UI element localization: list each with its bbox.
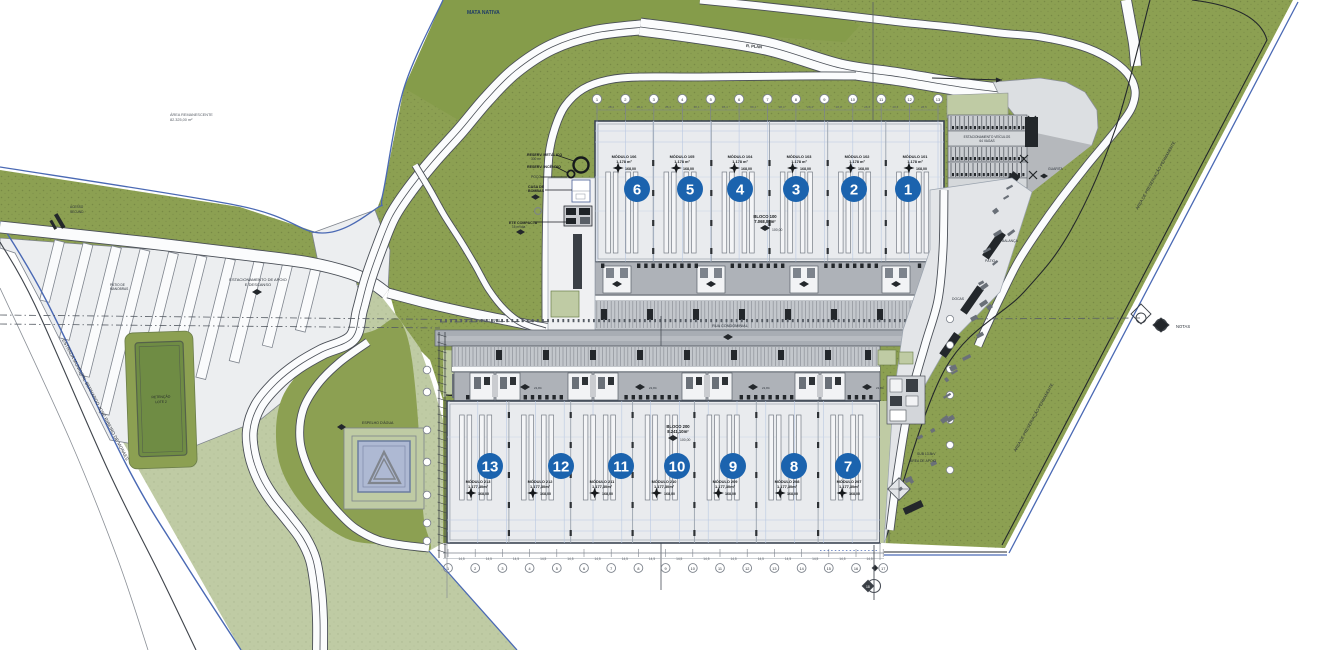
svg-text:1: 1 <box>904 182 912 199</box>
svg-text:10: 10 <box>669 459 686 476</box>
svg-text:82.325,00 m²: 82.325,00 m² <box>170 118 193 122</box>
svg-text:10: 10 <box>691 567 695 571</box>
svg-text:21,84: 21,84 <box>649 386 657 390</box>
svg-text:BOMBAS: BOMBAS <box>528 189 545 193</box>
svg-text:1.178 m²: 1.178 m² <box>674 159 690 164</box>
svg-text:3: 3 <box>792 182 800 199</box>
svg-text:LOTE 2: LOTE 2 <box>155 400 167 404</box>
svg-text:5: 5 <box>556 567 558 571</box>
svg-text:14,5: 14,5 <box>785 557 791 561</box>
svg-text:100,00: 100,00 <box>772 228 782 232</box>
svg-text:28,4: 28,4 <box>608 105 614 109</box>
svg-text:168,00: 168,00 <box>683 167 694 171</box>
svg-text:3: 3 <box>501 567 503 571</box>
svg-text:1.178 m²: 1.178 m² <box>907 159 923 164</box>
svg-text:ESPELHO D'ÁGUA: ESPELHO D'ÁGUA <box>362 421 394 425</box>
svg-text:21,84: 21,84 <box>534 386 542 390</box>
svg-text:28,4: 28,4 <box>836 105 842 109</box>
svg-text:28,4: 28,4 <box>694 105 700 109</box>
svg-text:28,4: 28,4 <box>807 105 813 109</box>
svg-text:8: 8 <box>790 459 798 476</box>
svg-text:BALANÇA: BALANÇA <box>1002 239 1019 243</box>
svg-text:RESERV. INCÊNDIO: RESERV. INCÊNDIO <box>527 164 561 169</box>
svg-text:SUB 13.8kV: SUB 13.8kV <box>917 452 936 456</box>
svg-text:168,00: 168,00 <box>625 167 636 171</box>
svg-text:6: 6 <box>583 567 585 571</box>
svg-text:28,4: 28,4 <box>665 105 671 109</box>
svg-text:14,5: 14,5 <box>594 557 600 561</box>
svg-text:14,5: 14,5 <box>676 557 682 561</box>
svg-text:ACESSO: ACESSO <box>70 205 84 209</box>
svg-text:14,5: 14,5 <box>649 557 655 561</box>
svg-text:4: 4 <box>736 182 745 199</box>
svg-text:14,5: 14,5 <box>567 557 573 561</box>
svg-text:7.068,00m²: 7.068,00m² <box>754 219 776 224</box>
svg-text:100,00: 100,00 <box>680 438 690 442</box>
svg-text:168,00: 168,00 <box>540 492 551 496</box>
svg-text:14,5: 14,5 <box>812 557 818 561</box>
svg-text:28,4: 28,4 <box>779 105 785 109</box>
svg-text:14,5: 14,5 <box>486 557 492 561</box>
svg-text:28,4: 28,4 <box>750 105 756 109</box>
svg-text:15: 15 <box>827 567 831 571</box>
svg-text:5: 5 <box>686 182 694 199</box>
svg-text:28,4: 28,4 <box>637 105 643 109</box>
svg-text:9: 9 <box>729 459 737 476</box>
svg-text:14,5: 14,5 <box>513 557 519 561</box>
svg-text:64 VAGAS: 64 VAGAS <box>979 139 994 143</box>
svg-text:2: 2 <box>474 567 476 571</box>
svg-text:MATA NATIVA: MATA NATIVA <box>467 10 500 16</box>
svg-text:MANOBRAS: MANOBRAS <box>110 287 128 291</box>
svg-text:14,5: 14,5 <box>622 557 628 561</box>
svg-text:13: 13 <box>772 567 776 571</box>
svg-text:13: 13 <box>482 459 499 476</box>
svg-text:6: 6 <box>633 182 641 199</box>
svg-text:9: 9 <box>665 567 667 571</box>
svg-text:28,4: 28,4 <box>892 105 898 109</box>
svg-text:DOCAS: DOCAS <box>952 297 965 301</box>
svg-text:13: 13 <box>936 97 941 102</box>
svg-text:RUA CONDOMINIAL: RUA CONDOMINIAL <box>712 324 748 328</box>
svg-text:28,4: 28,4 <box>864 105 870 109</box>
svg-text:E DESCANSO: E DESCANSO <box>245 282 271 287</box>
svg-text:8: 8 <box>637 567 639 571</box>
svg-text:14,5: 14,5 <box>758 557 764 561</box>
svg-text:12: 12 <box>745 567 749 571</box>
svg-text:12: 12 <box>907 97 912 102</box>
svg-text:168,00: 168,00 <box>858 167 869 171</box>
svg-text:12: 12 <box>553 459 570 476</box>
svg-text:POÇO: POÇO <box>531 175 541 179</box>
svg-text:18: 18 <box>866 585 870 589</box>
svg-text:8.241,10m²: 8.241,10m² <box>667 429 689 434</box>
svg-text:1.178 m²: 1.178 m² <box>616 159 632 164</box>
svg-text:300 m³: 300 m³ <box>531 157 541 161</box>
svg-text:7: 7 <box>844 459 852 476</box>
svg-text:15 m³/dia: 15 m³/dia <box>512 225 526 229</box>
svg-text:1.177,30m²: 1.177,30m² <box>592 484 613 489</box>
svg-text:168,00: 168,00 <box>602 492 613 496</box>
svg-text:SECUND.: SECUND. <box>70 210 84 214</box>
svg-text:14,5: 14,5 <box>703 557 709 561</box>
svg-text:28,4: 28,4 <box>921 105 927 109</box>
svg-text:28,4: 28,4 <box>722 105 728 109</box>
svg-text:PÁTIO: PÁTIO <box>985 259 996 263</box>
svg-text:1.178 m²: 1.178 m² <box>849 159 865 164</box>
svg-text:RETENÇÃO: RETENÇÃO <box>151 394 170 400</box>
svg-text:168,00: 168,00 <box>916 167 927 171</box>
svg-text:14,5: 14,5 <box>458 557 464 561</box>
svg-text:168,00: 168,00 <box>800 167 811 171</box>
svg-text:7: 7 <box>610 567 612 571</box>
svg-text:10: 10 <box>851 97 856 102</box>
svg-text:17: 17 <box>881 567 885 571</box>
svg-text:168,00: 168,00 <box>725 492 736 496</box>
svg-text:168,00: 168,00 <box>849 492 860 496</box>
svg-text:168,00: 168,00 <box>787 492 798 496</box>
svg-text:21,84: 21,84 <box>762 386 770 390</box>
svg-text:2: 2 <box>850 182 858 199</box>
svg-text:NOTAS: NOTAS <box>1176 324 1190 329</box>
svg-text:14,5: 14,5 <box>730 557 736 561</box>
svg-text:11: 11 <box>718 567 722 571</box>
svg-text:GUARITA: GUARITA <box>1048 167 1064 171</box>
svg-text:1.177,30m²: 1.177,30m² <box>654 484 675 489</box>
svg-text:14,5: 14,5 <box>866 557 872 561</box>
svg-text:11: 11 <box>613 459 629 476</box>
svg-text:4: 4 <box>529 567 531 571</box>
svg-text:168,00: 168,00 <box>478 492 489 496</box>
svg-text:168,00: 168,00 <box>664 492 675 496</box>
svg-text:ÁREA DE APOIO: ÁREA DE APOIO <box>910 459 937 463</box>
svg-text:14: 14 <box>799 567 803 571</box>
svg-text:1.178 m²: 1.178 m² <box>791 159 807 164</box>
svg-text:21,84: 21,84 <box>876 386 884 390</box>
svg-text:ÁREA REMANESCENTE: ÁREA REMANESCENTE <box>170 113 213 117</box>
svg-text:14,5: 14,5 <box>540 557 546 561</box>
svg-text:14,5: 14,5 <box>839 557 845 561</box>
svg-text:16: 16 <box>854 567 858 571</box>
svg-text:168,00: 168,00 <box>741 167 752 171</box>
svg-text:1.177,30m²: 1.177,30m² <box>530 484 551 489</box>
